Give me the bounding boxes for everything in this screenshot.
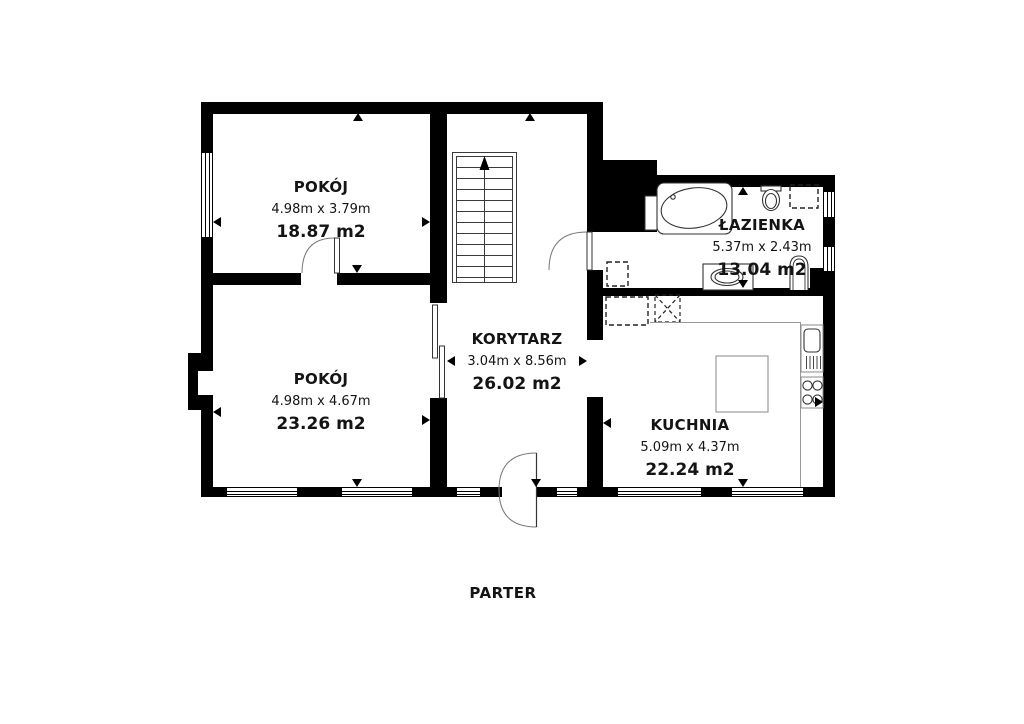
room-name: ŁAZIENKA	[692, 216, 832, 234]
toilet-icon	[761, 186, 781, 211]
staircase-icon	[453, 153, 517, 283]
room-area: 22.24 m2	[620, 460, 760, 480]
room-label-korytarz: KORYTARZ 3.04m x 8.56m 26.02 m2	[443, 330, 591, 394]
room-area: 18.87 m2	[212, 222, 430, 242]
room-door	[302, 238, 340, 273]
room-name: POKÓJ	[212, 178, 430, 196]
room-label-lazienka: ŁAZIENKA 5.37m x 2.43m 13.04 m2	[692, 216, 832, 280]
kitchen-table-icon	[716, 356, 768, 412]
room-area: 26.02 m2	[443, 374, 591, 394]
room-name: KUCHNIA	[620, 416, 760, 434]
entrance-door	[499, 453, 537, 527]
floor-title: PARTER	[423, 584, 583, 602]
room-name: KORYTARZ	[443, 330, 591, 348]
fridge-dashed-icon	[606, 297, 648, 325]
room-dimensions: 4.98m x 4.67m	[212, 394, 430, 409]
bathroom-cabinet-icon	[607, 262, 628, 286]
room-dimensions: 5.37m x 2.43m	[692, 240, 832, 255]
room-name: POKÓJ	[212, 370, 430, 388]
kitchen-sink-icon	[801, 325, 823, 372]
bathroom-door	[549, 232, 592, 270]
washing-machine-icon	[790, 185, 818, 208]
room-area: 23.26 m2	[212, 414, 430, 434]
floor-plan: POKÓJ 4.98m x 3.79m 18.87 m2 POKÓJ 4.98m…	[0, 0, 1024, 724]
room-dimensions: 4.98m x 3.79m	[212, 202, 430, 217]
room-dimensions: 3.04m x 8.56m	[443, 354, 591, 369]
room-label-kuchnia: KUCHNIA 5.09m x 4.37m 22.24 m2	[620, 416, 760, 480]
hob-dashed-icon	[655, 295, 680, 322]
room-dimensions: 5.09m x 4.37m	[620, 440, 760, 455]
room-label-pokoj-1: POKÓJ 4.98m x 3.79m 18.87 m2	[212, 178, 430, 242]
room-label-pokoj-2: POKÓJ 4.98m x 4.67m 23.26 m2	[212, 370, 430, 434]
room-area: 13.04 m2	[692, 260, 832, 280]
